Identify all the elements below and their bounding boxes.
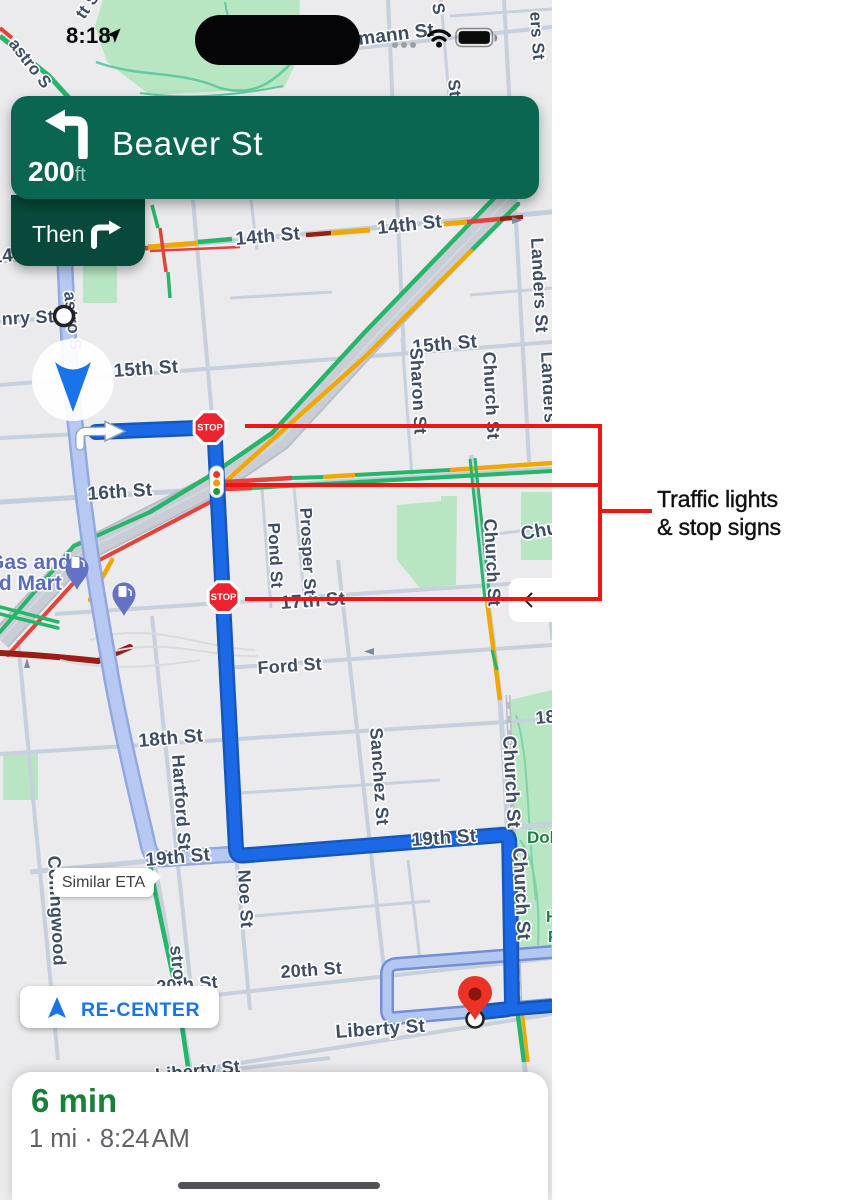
svg-text:18: 18 <box>535 706 552 728</box>
svg-text:STOP: STOP <box>211 592 237 603</box>
svg-text:20th St: 20th St <box>280 958 343 982</box>
svg-text:St: St <box>444 78 465 97</box>
svg-text:Pond St: Pond St <box>264 522 286 589</box>
svg-text:Dol: Dol <box>527 828 552 847</box>
svg-text:Gas and: Gas and <box>0 551 71 574</box>
svg-text:od Mart: od Mart <box>0 572 62 595</box>
svg-text:H: H <box>546 909 552 926</box>
svg-text:P: P <box>548 929 552 946</box>
svg-text:Noe St: Noe St <box>234 869 257 928</box>
svg-text:STOP: STOP <box>197 423 223 434</box>
svg-text:nry St: nry St <box>1 306 54 329</box>
